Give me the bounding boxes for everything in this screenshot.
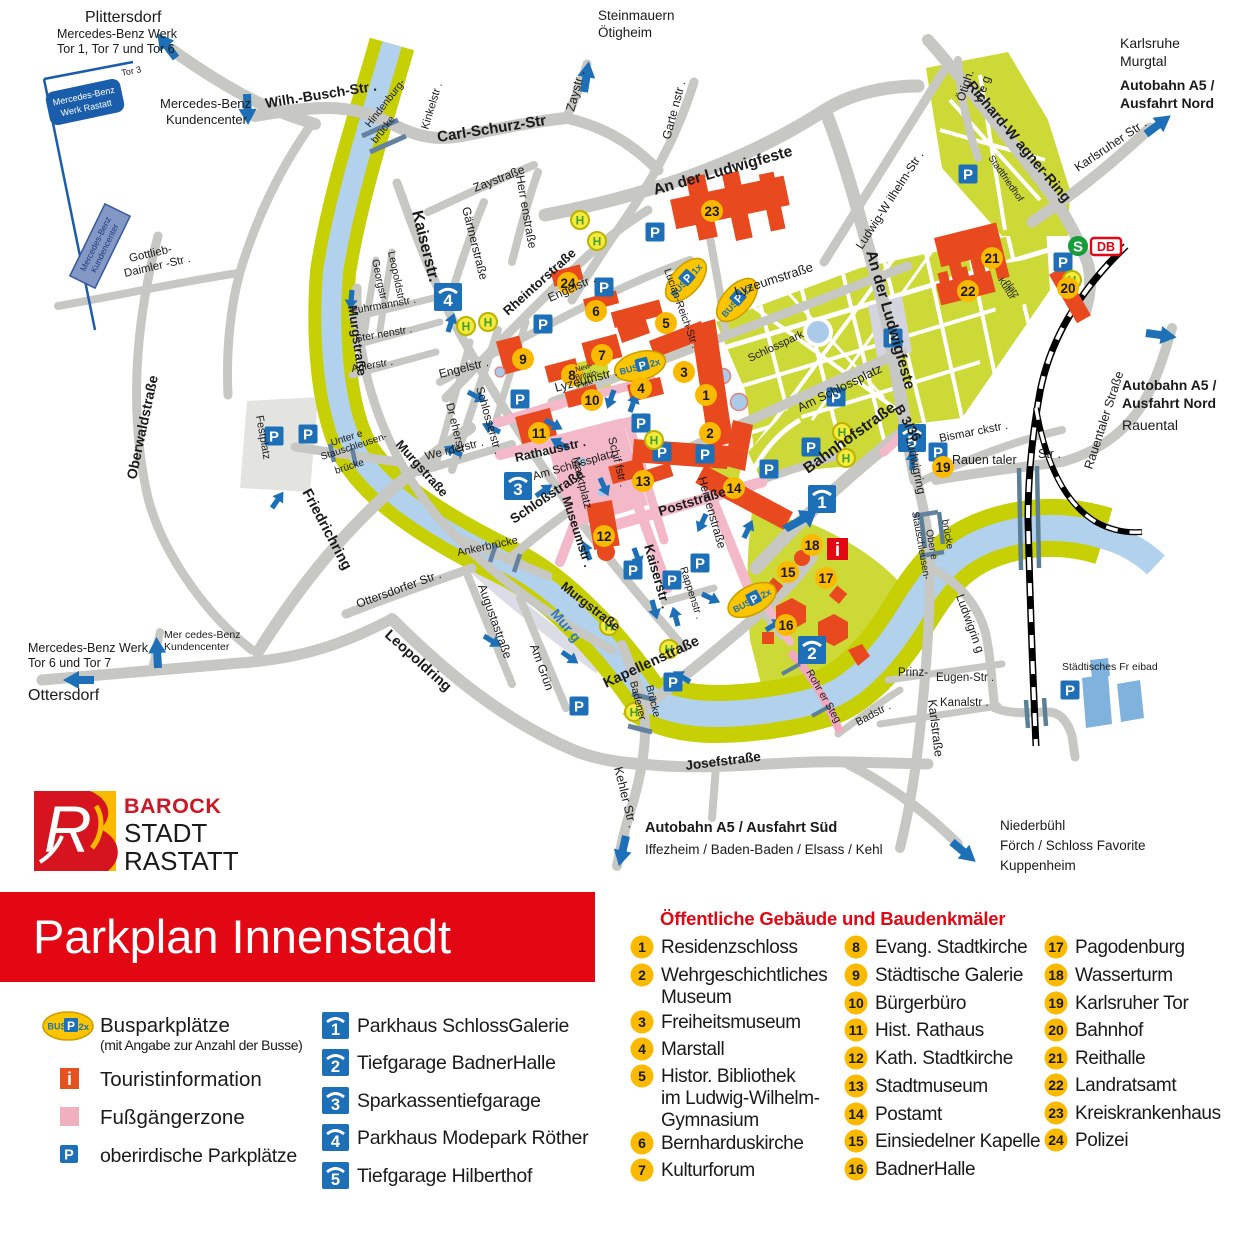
svg-text:Ausfahrt Nord: Ausfahrt Nord (1122, 395, 1216, 411)
svg-text:Einsiedelner Kapelle: Einsiedelner Kapelle (875, 1131, 1040, 1152)
svg-text:Kath. Stadtkirche: Kath. Stadtkirche (875, 1048, 1013, 1069)
svg-text:11: 11 (532, 426, 547, 441)
svg-text:Bahnhof: Bahnhof (1075, 1020, 1144, 1041)
svg-text:RASTATT: RASTATT (124, 846, 239, 876)
svg-text:Eugen-Str .: Eugen-Str . (936, 672, 994, 684)
svg-text:19: 19 (1048, 995, 1064, 1011)
svg-text:Parkhaus Modepark Röther: Parkhaus Modepark Röther (357, 1127, 589, 1149)
svg-text:12: 12 (848, 1050, 864, 1066)
svg-text:12: 12 (596, 529, 611, 544)
svg-text:Rauen taler: Rauen taler (952, 453, 1017, 467)
svg-text:Plittersdorf: Plittersdorf (85, 9, 162, 26)
svg-text:18: 18 (804, 538, 820, 553)
svg-text:11: 11 (849, 1022, 864, 1038)
svg-text:Tiefgarage Hilberthof: Tiefgarage Hilberthof (357, 1165, 533, 1187)
svg-text:Wehrgeschichtliches: Wehrgeschichtliches (661, 965, 827, 986)
svg-text:BadnerHalle: BadnerHalle (875, 1159, 975, 1180)
svg-text:Kanalstr .: Kanalstr . (940, 697, 989, 709)
svg-text:Bürgerbüro: Bürgerbüro (875, 993, 966, 1014)
svg-text:Steinmauern: Steinmauern (598, 8, 675, 23)
svg-text:Busparkplätze: Busparkplätze (100, 1014, 230, 1037)
svg-text:Kundencenter: Kundencenter (164, 641, 230, 653)
svg-text:5: 5 (662, 316, 670, 331)
svg-text:5: 5 (638, 1068, 646, 1084)
svg-text:2: 2 (706, 426, 714, 441)
svg-text:4: 4 (331, 1133, 341, 1151)
svg-text:Niederbühl: Niederbühl (1000, 818, 1065, 833)
svg-text:4: 4 (638, 1041, 646, 1057)
svg-text:1: 1 (331, 1021, 340, 1039)
svg-text:13: 13 (848, 1078, 864, 1094)
svg-text:21: 21 (984, 251, 1000, 266)
svg-text:22: 22 (1048, 1077, 1064, 1093)
svg-text:6: 6 (592, 304, 600, 319)
svg-text:Wasserturm: Wasserturm (1075, 965, 1173, 986)
svg-text:2: 2 (638, 967, 646, 983)
svg-text:BAROCK: BAROCK (124, 794, 221, 818)
svg-text:14: 14 (848, 1106, 864, 1122)
svg-text:24: 24 (1048, 1132, 1064, 1148)
svg-text:3: 3 (638, 1014, 646, 1030)
svg-text:Polizei: Polizei (1075, 1130, 1128, 1151)
svg-text:Karlsruher Tor: Karlsruher Tor (1075, 993, 1189, 1014)
svg-text:9: 9 (519, 352, 527, 367)
svg-text:10: 10 (584, 393, 599, 408)
svg-text:Marstall: Marstall (661, 1039, 724, 1060)
svg-text:10: 10 (848, 995, 864, 1011)
svg-text:Pagodenburg: Pagodenburg (1075, 937, 1185, 958)
svg-text:Tiefgarage BadnerHalle: Tiefgarage BadnerHalle (357, 1052, 556, 1074)
svg-text:Ötigheim: Ötigheim (598, 25, 652, 40)
svg-text:Touristinformation: Touristinformation (100, 1068, 262, 1091)
svg-text:4: 4 (443, 291, 453, 310)
svg-text:7: 7 (638, 1162, 646, 1178)
svg-text:(mit Angabe zur Anzahl der Bus: (mit Angabe zur Anzahl der Busse) (100, 1037, 302, 1053)
svg-text:Mercedes-Benz: Mercedes-Benz (160, 96, 251, 111)
svg-text:2: 2 (807, 644, 816, 663)
svg-text:Förch / Schloss Favorite: Förch / Schloss Favorite (1000, 838, 1146, 853)
svg-text:22: 22 (960, 284, 975, 299)
svg-text:8: 8 (852, 939, 860, 955)
svg-text:Sparkassentiefgarage: Sparkassentiefgarage (357, 1090, 541, 1112)
svg-text:Stadtmuseum: Stadtmuseum (875, 1076, 988, 1097)
svg-text:17: 17 (818, 571, 833, 586)
svg-text:i: i (67, 1069, 72, 1089)
svg-text:Kuppenheim: Kuppenheim (1000, 858, 1076, 873)
svg-text:Str .: Str . (1038, 447, 1061, 461)
svg-text:16: 16 (778, 618, 794, 633)
svg-text:21: 21 (1048, 1050, 1064, 1066)
svg-text:Landratsamt: Landratsamt (1075, 1075, 1177, 1096)
svg-text:1: 1 (702, 388, 710, 403)
svg-text:23: 23 (1048, 1105, 1064, 1121)
svg-text:Kulturforum: Kulturforum (661, 1160, 755, 1181)
svg-text:Fußgängerzone: Fußgängerzone (100, 1106, 245, 1129)
svg-text:P: P (64, 1148, 74, 1164)
svg-text:im Ludwig-Wilhelm-: im Ludwig-Wilhelm- (661, 1088, 820, 1109)
svg-text:6: 6 (638, 1135, 646, 1151)
svg-text:Hist. Rathaus: Hist. Rathaus (875, 1020, 984, 1041)
svg-text:Postamt: Postamt (875, 1104, 943, 1125)
svg-text:1: 1 (638, 939, 646, 955)
svg-text:Freiheitsmuseum: Freiheitsmuseum (661, 1012, 801, 1033)
svg-text:Iffezheim / Baden-Baden / Elsa: Iffezheim / Baden-Baden / Elsass / Kehl (645, 842, 883, 857)
svg-text:BUS: BUS (48, 1022, 67, 1032)
svg-text:Histor. Bibliothek: Histor. Bibliothek (661, 1066, 796, 1087)
svg-text:Evang. Stadtkirche: Evang. Stadtkirche (875, 937, 1027, 958)
svg-text:Murgtal: Murgtal (1120, 53, 1167, 69)
svg-text:23: 23 (704, 204, 720, 219)
svg-text:STADT: STADT (124, 818, 207, 848)
svg-text:Autobahn A5 /: Autobahn A5 / (1122, 377, 1216, 393)
svg-text:15: 15 (780, 565, 796, 580)
svg-text:7: 7 (598, 348, 606, 363)
svg-text:20: 20 (1060, 281, 1075, 296)
svg-text:Öffentliche Gebäude und Bauden: Öffentliche Gebäude und Baudenkmäler (660, 908, 1005, 929)
svg-text:1: 1 (817, 493, 826, 512)
svg-text:16: 16 (848, 1161, 864, 1177)
svg-text:Mercedes-Benz Werk: Mercedes-Benz Werk (28, 641, 149, 655)
svg-text:oberirdische Parkplätze: oberirdische Parkplätze (100, 1145, 297, 1167)
svg-text:Städtische Galerie: Städtische Galerie (875, 965, 1023, 986)
svg-text:Karlsruhe: Karlsruhe (1120, 35, 1180, 51)
svg-text:Parkplan Innenstadt: Parkplan Innenstadt (33, 910, 451, 963)
svg-text:Kundencenter: Kundencenter (166, 112, 248, 127)
svg-text:Kreiskrankenhaus: Kreiskrankenhaus (1075, 1103, 1221, 1124)
svg-text:Ottersdorf: Ottersdorf (28, 687, 100, 704)
svg-text:Mer cedes-Benz: Mer cedes-Benz (164, 629, 240, 641)
svg-text:Tor 6 und Tor 7: Tor 6 und Tor 7 (28, 656, 111, 670)
svg-text:Mercedes-Benz Werk: Mercedes-Benz Werk (57, 27, 178, 41)
svg-text:Reithalle: Reithalle (1075, 1048, 1145, 1069)
svg-text:Autobahn A5 / Ausfahrt Süd: Autobahn A5 / Ausfahrt Süd (645, 820, 837, 836)
svg-text:Residenzschloss: Residenzschloss (661, 937, 798, 958)
svg-text:2x: 2x (79, 1022, 90, 1033)
svg-text:S: S (1073, 239, 1083, 256)
svg-text:DB: DB (1097, 240, 1115, 254)
svg-text:20: 20 (1048, 1022, 1064, 1038)
svg-text:13: 13 (635, 474, 651, 489)
svg-text:i: i (835, 540, 840, 561)
svg-text:Tor 1, Tor 7 und Tor 6: Tor 1, Tor 7 und Tor 6 (57, 42, 175, 56)
svg-text:P: P (67, 1019, 75, 1033)
svg-text:Gymnasium: Gymnasium (661, 1110, 759, 1131)
svg-text:19: 19 (935, 460, 950, 475)
svg-text:3: 3 (513, 480, 522, 499)
svg-text:2: 2 (331, 1058, 340, 1076)
svg-text:3: 3 (331, 1096, 340, 1114)
svg-text:3: 3 (680, 365, 688, 380)
svg-text:15: 15 (848, 1133, 864, 1149)
svg-text:14: 14 (726, 481, 742, 496)
svg-text:Autobahn A5 /: Autobahn A5 / (1120, 77, 1214, 93)
svg-text:Bernharduskirche: Bernharduskirche (661, 1133, 804, 1154)
svg-text:18: 18 (1048, 967, 1064, 983)
svg-text:Prinz-: Prinz- (898, 667, 928, 679)
svg-text:5: 5 (331, 1171, 340, 1189)
svg-text:4: 4 (637, 381, 645, 396)
svg-text:Ausfahrt Nord: Ausfahrt Nord (1120, 95, 1214, 111)
svg-text:Rauental: Rauental (1122, 417, 1178, 433)
svg-text:9: 9 (852, 967, 860, 983)
svg-text:Parkhaus SchlossGalerie: Parkhaus SchlossGalerie (357, 1015, 569, 1037)
svg-text:Museum: Museum (661, 987, 731, 1008)
svg-text:17: 17 (1048, 939, 1064, 955)
svg-text:Städtisches Fr eibad: Städtisches Fr eibad (1062, 661, 1158, 673)
